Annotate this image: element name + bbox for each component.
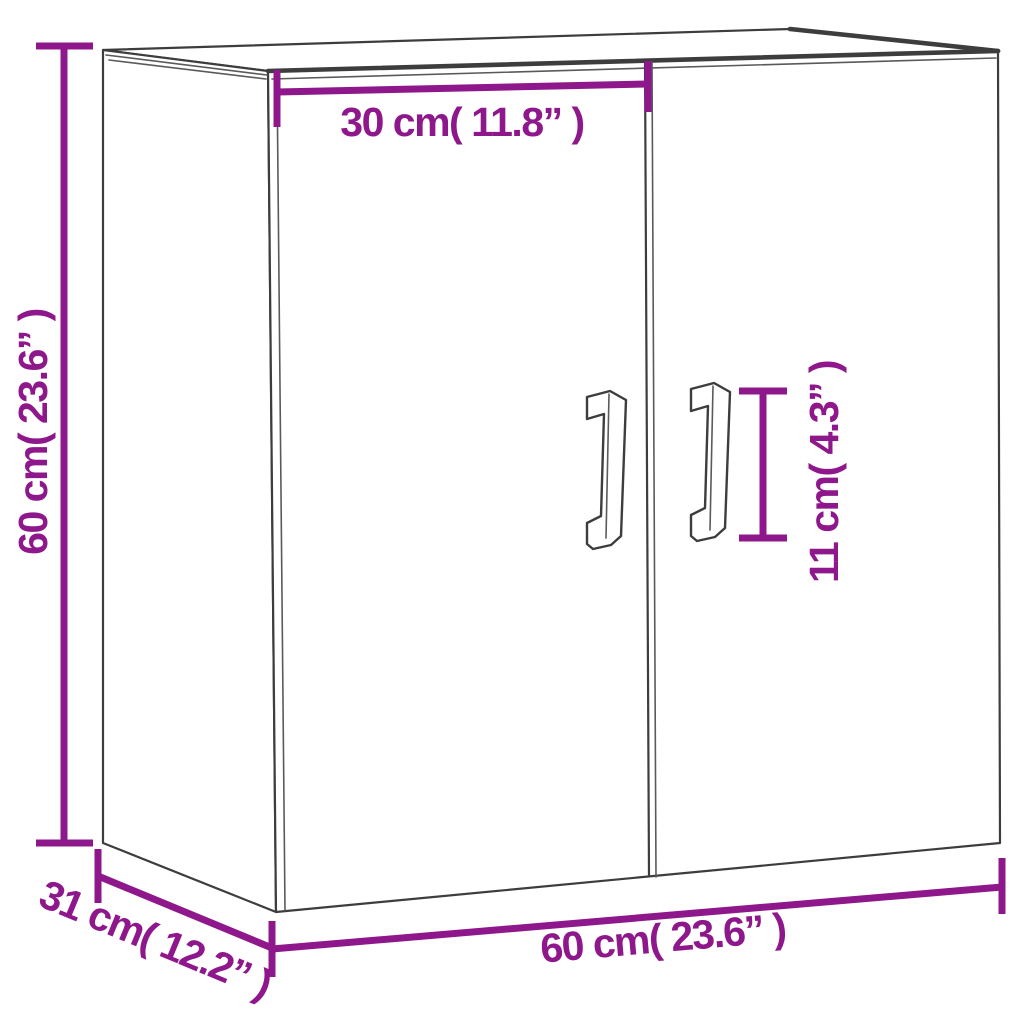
cabinet <box>103 29 1000 912</box>
cabinet-front-face <box>268 51 1000 912</box>
product-dimension-diagram: 60 cm( 23.6” ) 30 cm( 11.8” ) 11 cm( 4.3… <box>0 0 1024 1024</box>
dimension-label-handle-height: 11 cm( 4.3” ) <box>801 361 847 583</box>
dimension-label-cabinet-height: 60 cm( 23.6” ) <box>10 309 56 555</box>
dimension-cabinet-height: 60 cm( 23.6” ) <box>10 46 93 843</box>
dimension-label-door-width: 30 cm( 11.8” ) <box>340 99 583 145</box>
dimension-label-cabinet-width: 60 cm( 23.6” ) <box>538 904 787 971</box>
cabinet-diagram-canvas: 60 cm( 23.6” ) 30 cm( 11.8” ) 11 cm( 4.3… <box>0 0 1024 1024</box>
cabinet-left-side-panel <box>103 50 276 912</box>
